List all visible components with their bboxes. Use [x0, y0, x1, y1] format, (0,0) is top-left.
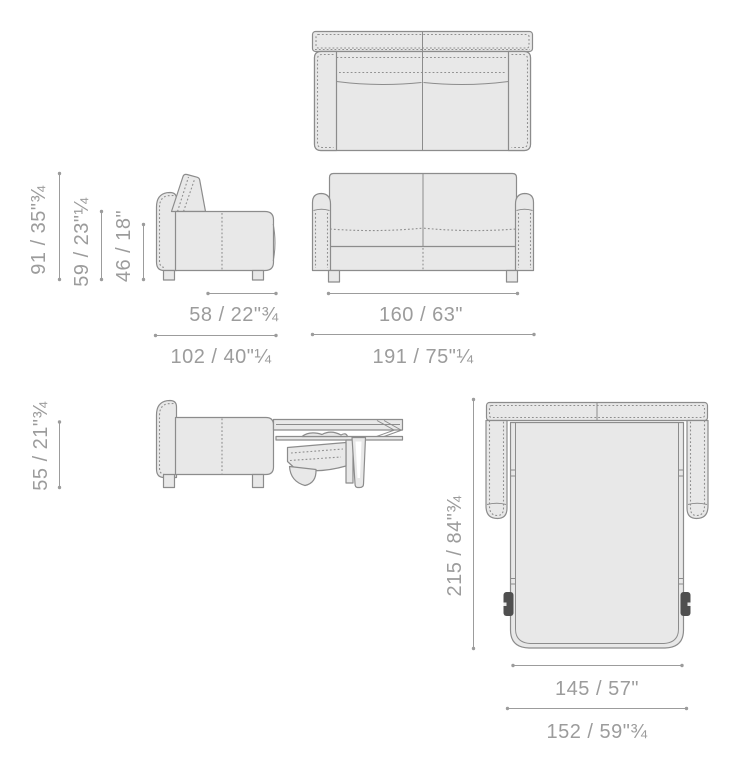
label-inner-width: 160 / 63" — [379, 304, 463, 326]
dimension-seat-height: 46 / 18" — [113, 210, 145, 282]
label-seat-depth: 58 / 22"¾ — [189, 304, 278, 326]
top-view-open — [486, 403, 708, 649]
label-bed-frame-width: 152 / 59"¾ — [546, 721, 647, 743]
rear-leg — [253, 271, 264, 281]
left-arm-front — [313, 194, 331, 271]
dimension-bed-surface-height: 55 / 21"¾ — [30, 401, 61, 490]
arm-side-open — [176, 418, 274, 475]
top-view-closed — [313, 32, 533, 151]
folded-mattress-block — [288, 443, 347, 471]
fabric-flap — [290, 467, 317, 486]
open-front-leg — [164, 475, 175, 488]
dimension-seat-depth: 58 / 22"¾ — [189, 292, 278, 326]
dimension-open-length: 215 / 84"¾ — [444, 398, 475, 650]
label-backrest-height: 59 / 23"¼ — [71, 197, 93, 286]
sofa-bed-dimension-diagram: 91 / 35"¾ 59 / 23"¼ 46 / 18" 58 / 22"¾ 1… — [0, 0, 734, 768]
base-front — [330, 247, 517, 271]
mattress — [511, 423, 684, 649]
caster-wheel-left-notch — [504, 603, 507, 607]
label-total-width: 191 / 75"¼ — [372, 346, 473, 368]
label-bed-surface-height: 55 / 21"¾ — [30, 401, 52, 490]
front-left-leg — [329, 271, 340, 283]
technical-drawing-canvas: 91 / 35"¾ 59 / 23"¼ 46 / 18" 58 / 22"¾ 1… — [0, 0, 734, 768]
label-total-depth: 102 / 40"¼ — [170, 346, 271, 368]
dimension-bed-frame-width: 152 / 59"¾ — [506, 707, 688, 743]
dimension-inner-width: 160 / 63" — [327, 292, 519, 326]
back-slab-open — [157, 401, 177, 478]
dimension-backrest-height: 59 / 23"¼ — [71, 197, 103, 286]
mechanism-bracket — [346, 440, 353, 483]
back-cushion-profile — [172, 174, 206, 211]
label-open-length: 215 / 84"¾ — [444, 495, 466, 596]
dimension-total-height: 91 / 35"¾ — [28, 172, 61, 281]
side-view-open — [157, 401, 403, 488]
dimension-total-width: 191 / 75"¼ — [311, 333, 536, 368]
dimension-total-depth: 102 / 40"¼ — [154, 334, 278, 368]
front-view-closed — [313, 174, 534, 283]
caster-wheel-right-notch — [688, 603, 691, 607]
front-leg — [164, 271, 175, 281]
side-view-closed — [157, 174, 276, 280]
label-mattress-width: 145 / 57" — [555, 678, 639, 700]
open-rear-leg — [253, 475, 264, 488]
folded-bedding-lumps — [302, 432, 348, 436]
front-right-leg — [507, 271, 518, 283]
dimension-mattress-width: 145 / 57" — [511, 664, 683, 700]
right-arm-front — [516, 194, 534, 271]
label-total-height: 91 / 35"¾ — [28, 185, 50, 274]
label-seat-height: 46 / 18" — [113, 210, 135, 282]
arm-side-profile — [176, 212, 274, 271]
